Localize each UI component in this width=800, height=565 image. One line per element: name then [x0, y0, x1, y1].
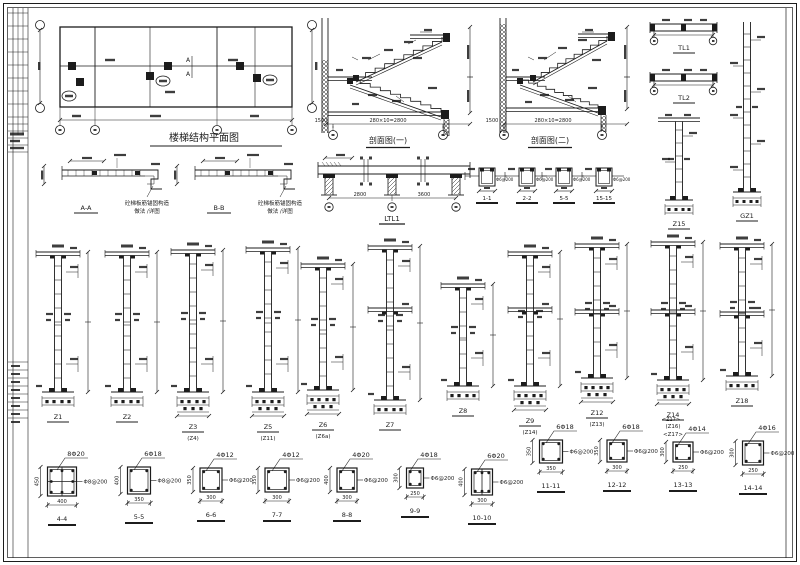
column-label: Z1: [54, 413, 63, 421]
column-label: Z8: [459, 407, 468, 415]
section-height-dim: 400: [459, 477, 465, 487]
section-width-dim: 300: [206, 495, 216, 501]
section-width-dim: 350: [546, 466, 556, 472]
section-stirrup: Φ6@200: [700, 450, 724, 456]
section-tag: <Z17>: [662, 417, 680, 423]
column-label: Z18: [736, 397, 749, 405]
section-rebar: 6Φ18: [622, 423, 640, 431]
section-stirrup: Φ6@200: [500, 480, 524, 486]
beam-detail-tl1: TL1: [650, 19, 717, 53]
section-stirrup: Φ6@200: [771, 451, 795, 457]
section-height-dim: 450: [35, 477, 41, 487]
column-elevation-z15: Z15: [658, 114, 700, 229]
section-label: 8-8: [342, 511, 353, 519]
stair-title: 剖面图(一): [369, 135, 407, 145]
section-stirrup: Φ8@200: [84, 480, 108, 486]
section-width-dim: 400: [57, 499, 67, 505]
section-height-dim: 400: [115, 476, 121, 486]
section-stirrup: Φ8@200: [158, 479, 182, 485]
beam-detail-tl2: TL2: [650, 69, 717, 103]
small-section-label: 2-2: [523, 196, 532, 202]
stair-run-dim: 280×10=2800: [369, 118, 406, 124]
section-label: 13-13: [674, 481, 693, 489]
stair-section-2: 280×10=28001500剖面图(二): [486, 18, 630, 148]
detail-note: 做法 /详图: [267, 207, 293, 215]
section-height-dim: 400: [324, 475, 330, 485]
column-label: Z3: [189, 423, 198, 431]
beam-label: TL2: [677, 94, 690, 102]
section-label: 14-14: [744, 484, 763, 492]
small-section-label: 15-15: [596, 196, 612, 202]
column-label: Z5: [264, 423, 273, 431]
section-rebar: 6Φ20: [487, 452, 505, 460]
section-rebar: 4Φ20: [352, 451, 370, 459]
section-stirrup: Φ6@200: [229, 478, 253, 484]
cad-sheet: AA楼梯结构平面图 280×10=28001500剖面图(一) 280×10=2…: [0, 0, 800, 565]
section-stirrup: Φ6@200: [570, 450, 594, 456]
column-sublabel: (Z6a): [316, 434, 331, 440]
section-width-dim: 250: [678, 465, 688, 471]
stair-run-dim: 280×10=2800: [534, 118, 571, 124]
section-label: 9-9: [410, 507, 421, 515]
section-rebar: 6Φ18: [144, 450, 162, 458]
beam-elevation-ltl1: 28003600LTL1: [318, 154, 470, 224]
section-width-dim: 250: [410, 491, 420, 497]
column-label: Z12: [591, 409, 604, 417]
plan-title: 楼梯结构平面图: [169, 131, 239, 144]
section-rebar: 8Φ20: [67, 450, 85, 458]
section-stirrup: Φ6@200: [634, 449, 658, 455]
section-rebar: 4Φ12: [282, 451, 300, 459]
plan-view: AA楼梯结构平面图: [36, 21, 318, 147]
section-rebar: 6Φ18: [556, 423, 574, 431]
beam-label: TL1: [677, 44, 690, 52]
section-label: 7-7: [272, 511, 283, 519]
column-sublabel: (Z11): [260, 436, 275, 442]
detail-note: 砼梯板筋锚固构造: [258, 199, 303, 207]
beam-elev-label: LTL1: [384, 215, 400, 223]
section-stirrup: Φ6@200: [431, 476, 455, 482]
detail-note: 砼梯板筋锚固构造: [125, 199, 170, 207]
drawing-canvas: AA楼梯结构平面图 280×10=28001500剖面图(一) 280×10=2…: [0, 0, 800, 565]
detail-note: 做法 /详图: [134, 207, 160, 215]
section-height-dim: 300: [730, 448, 736, 458]
section-width-dim: 350: [134, 497, 144, 503]
section-width-dim: 300: [272, 495, 282, 501]
section-rebar: 4Φ18: [420, 451, 438, 459]
detail-a-a: 砼梯板筋锚固构造做法 /详图A-A: [41, 154, 169, 215]
section-rebar: 4Φ12: [216, 451, 234, 459]
stair-section-1: 280×10=28001500剖面图(一): [315, 18, 473, 148]
detail-b-b: 砼梯板筋锚固构造做法 /详图B-B: [174, 154, 302, 215]
section-height-dim: 350: [187, 475, 193, 485]
section-label: 5-5: [134, 513, 145, 521]
beam-span-dim: 2800: [354, 192, 367, 198]
detail-label: B-B: [213, 204, 224, 212]
section-label: 4-4: [57, 515, 68, 523]
title-block-strip: [8, 8, 28, 558]
section-height-dim: 350: [252, 475, 258, 485]
section-height-dim: 300: [660, 447, 666, 457]
section-rebar: 4Φ16: [758, 424, 776, 432]
section-mark-a: A: [186, 57, 191, 64]
section-height-dim: 350: [594, 446, 600, 456]
stair-landing-dim: 1500: [315, 118, 328, 124]
small-section-stirrup: Φ6@200: [536, 177, 554, 182]
section-width-dim: 300: [612, 465, 622, 471]
column-elevations: Z1Z2Z3(Z4)Z5(Z11)Z6(Z6a)Z7Z8Z9(Z14)Z12(Z…: [36, 235, 775, 443]
column-sublabel: (Z4): [187, 436, 199, 442]
section-label: 12-12: [608, 481, 627, 489]
section-label: 6-6: [206, 511, 217, 519]
section-rebar: 4Φ14: [688, 425, 706, 433]
section-mark-a: A: [186, 71, 191, 78]
column-sublabel: (Z16): [665, 424, 680, 430]
section-width-dim: 300: [342, 495, 352, 501]
section-stirrup: Φ6@200: [364, 478, 388, 484]
column-label: Z7: [386, 421, 395, 429]
small-section-label: 1-1: [483, 196, 492, 202]
column-sublabel: (Z14): [522, 430, 537, 436]
section-label: 11-11: [542, 482, 561, 490]
beam-cut-sections: Φ6@2001-1Φ6@2002-2Φ6@2005-5Φ6@20015-15: [465, 168, 631, 203]
column-label: Z6: [319, 421, 328, 429]
detail-label: A-A: [81, 204, 93, 212]
small-section-stirrup: Φ6@200: [613, 177, 631, 182]
small-section-label: 5-5: [560, 196, 569, 202]
column-label: Z2: [123, 413, 132, 421]
column-label: Z15: [673, 220, 686, 228]
section-label: 10-10: [473, 514, 492, 522]
beam-span-dim: 3600: [418, 192, 431, 198]
sheet-border: [4, 4, 797, 562]
section-width-dim: 250: [748, 468, 758, 474]
column-sublabel: <Z17>: [663, 432, 683, 438]
section-height-dim: 350: [527, 447, 533, 457]
section-height-dim: 300: [394, 473, 400, 483]
column-elevation-gz1: GZ1: [730, 22, 765, 221]
stair-title: 剖面图(二): [531, 135, 569, 145]
stair-landing-dim: 1500: [486, 118, 499, 124]
section-width-dim: 300: [477, 498, 487, 504]
section-stirrup: Φ6@200: [296, 478, 320, 484]
column-label: Z9: [526, 417, 535, 425]
column-sublabel: (Z13): [589, 422, 604, 428]
column-label: GZ1: [740, 212, 754, 220]
